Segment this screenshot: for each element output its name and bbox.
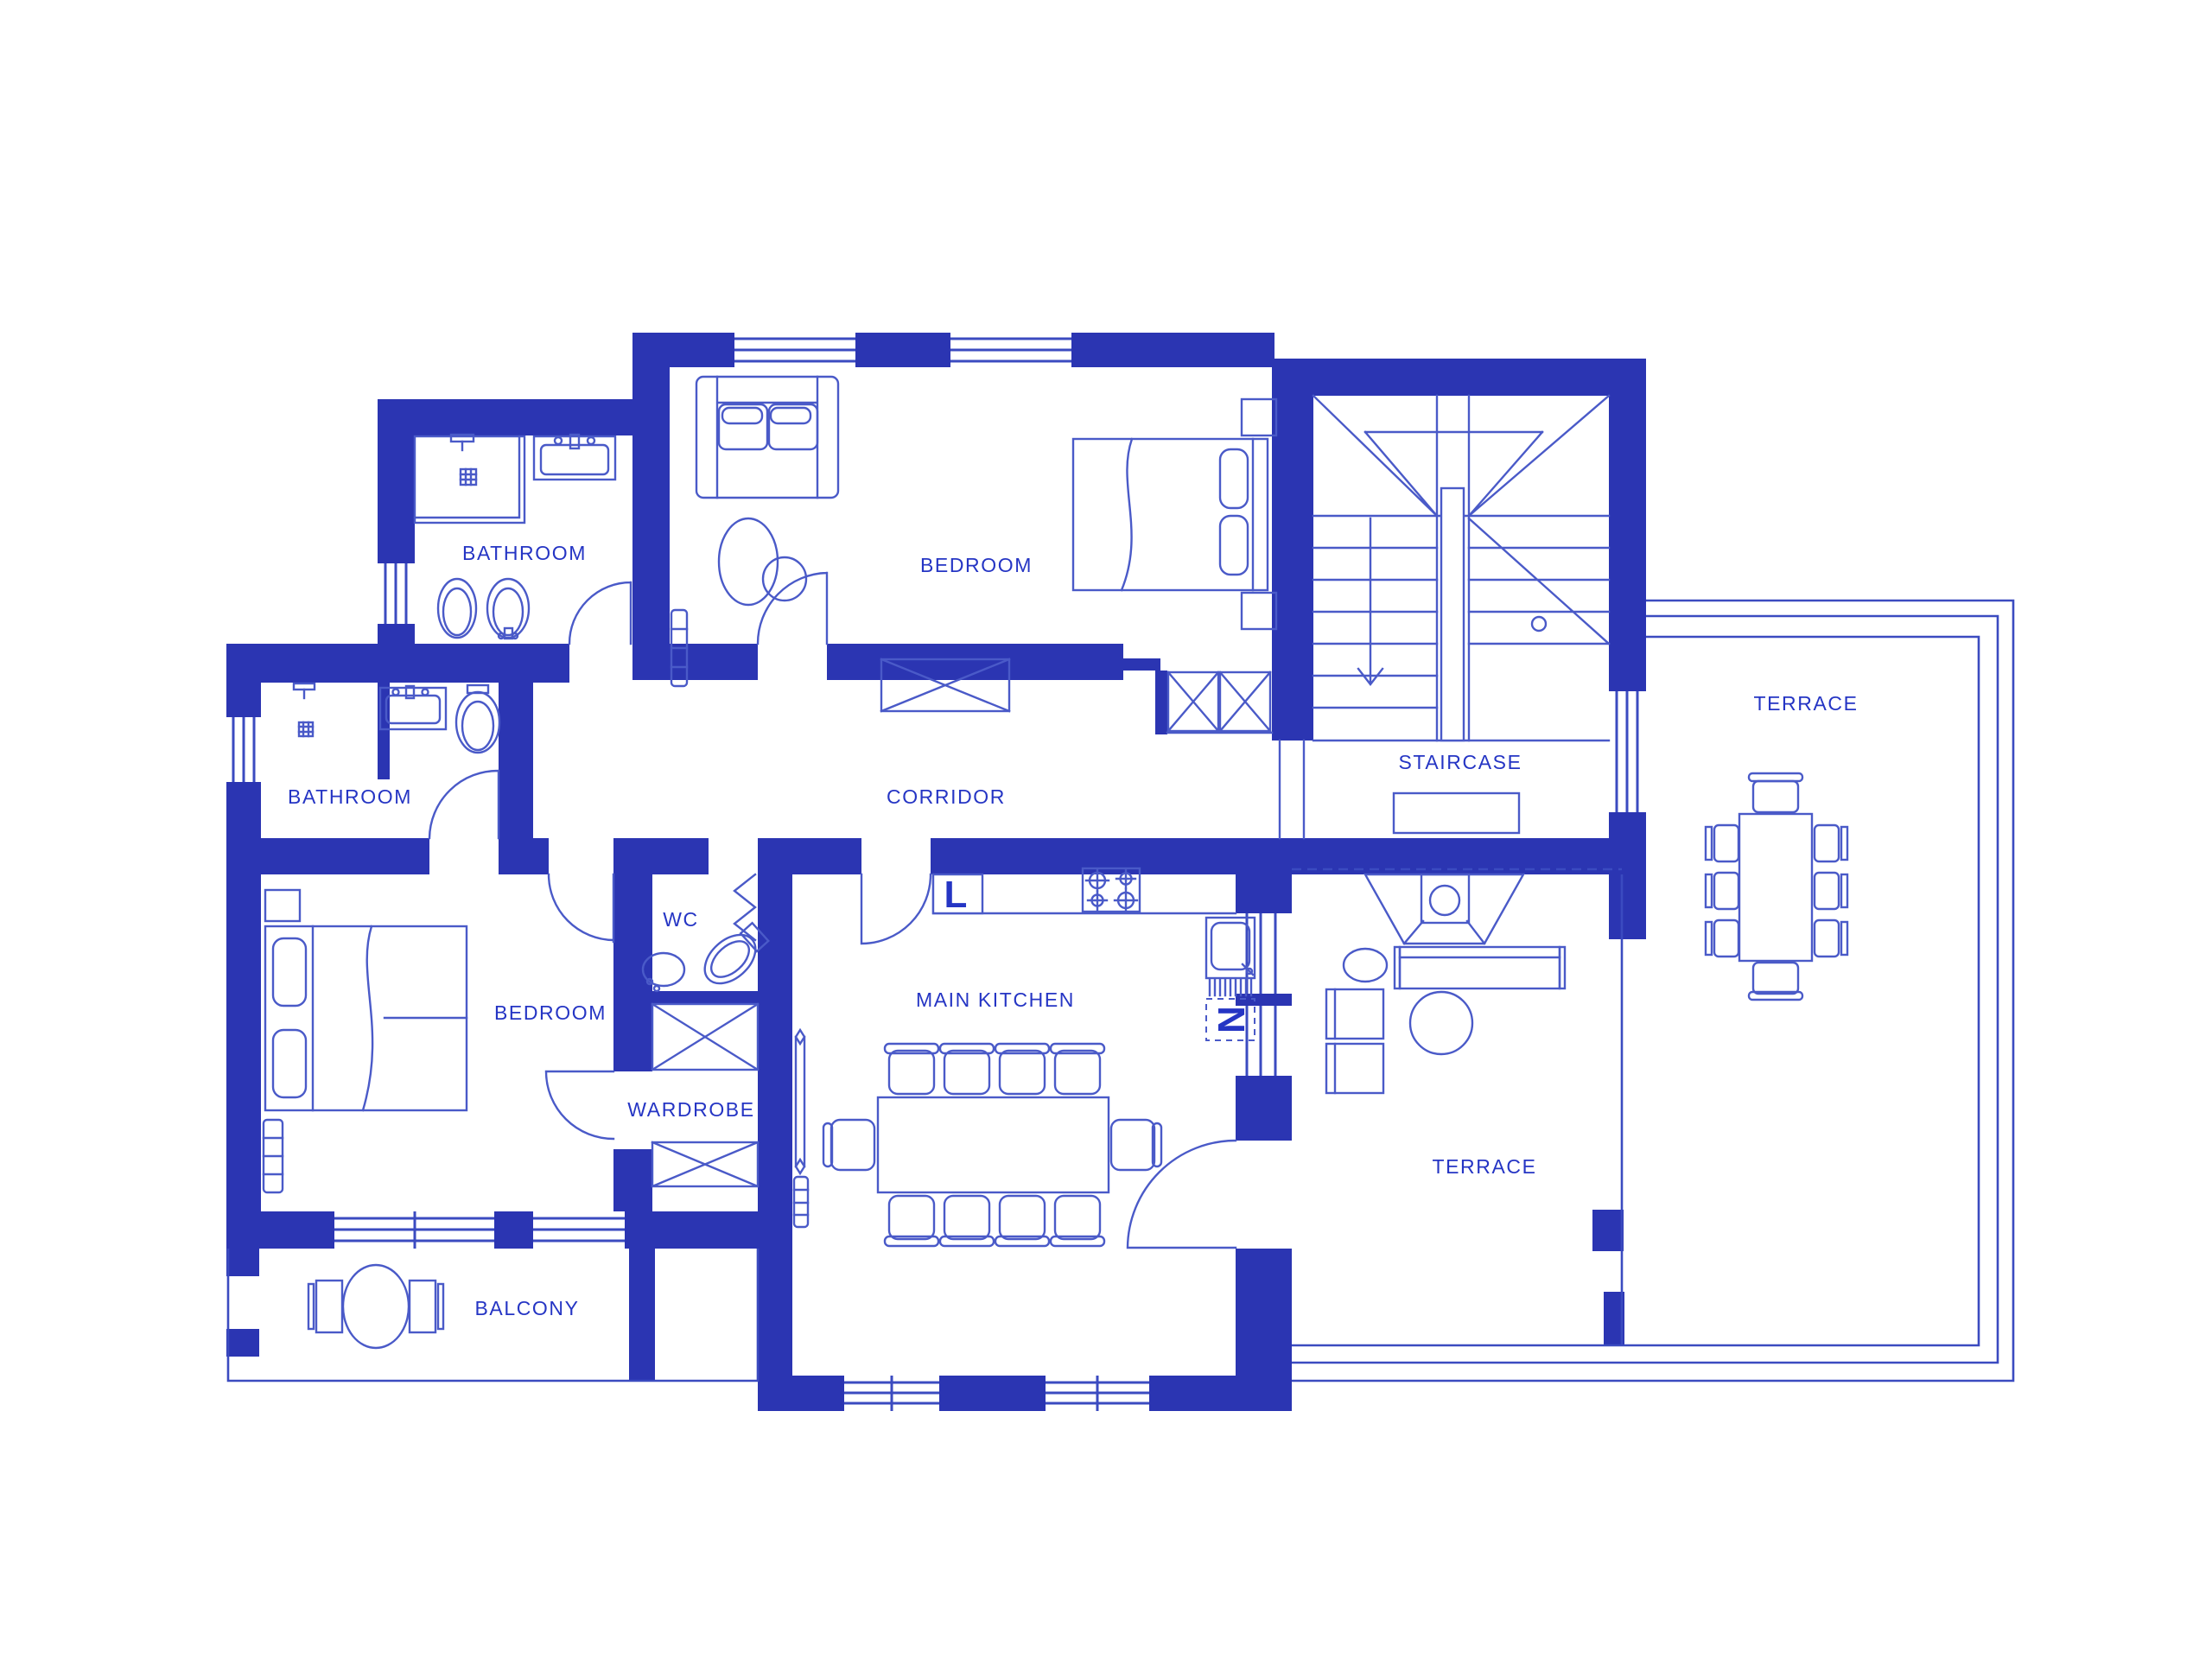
nightstand: [1242, 593, 1276, 629]
label-bedroom-lower: BEDROOM: [494, 1001, 607, 1024]
door-bedroom-lower: [549, 874, 613, 942]
radiator-icon: [794, 1177, 808, 1227]
sink-icon: [380, 686, 446, 729]
kitchen-fixtures: L N: [794, 868, 1255, 1246]
staircase-mat: [1394, 793, 1519, 833]
window-icon: [950, 333, 1071, 367]
door-kitchen: [861, 874, 931, 944]
window-icon: [734, 333, 855, 367]
stove-icon: [1083, 868, 1140, 912]
bench-icon: [1395, 947, 1565, 988]
window-icon: [1046, 1376, 1149, 1411]
shower-icon: [415, 435, 524, 523]
label-wc: WC: [663, 908, 699, 931]
door-bathroom-left: [429, 771, 499, 838]
balcony-chair-icon: [308, 1281, 342, 1332]
terrace-right-furniture: [1706, 773, 1847, 1000]
nightstand: [1242, 399, 1276, 435]
window-icon: [533, 1211, 625, 1249]
side-table: [1344, 949, 1387, 982]
outdoor-chair-icon: [1326, 1044, 1383, 1093]
nightstand: [265, 890, 300, 921]
glazing-corridor-staircase: [1280, 741, 1304, 838]
label-bathroom-top: BATHROOM: [462, 542, 587, 564]
window-icon: [378, 563, 415, 624]
appliance-mark-L: L: [944, 874, 968, 916]
toilet-icon: [456, 685, 499, 753]
closet-icon: [1167, 672, 1272, 733]
window-icon: [226, 717, 261, 782]
bidet-icon: [487, 579, 529, 639]
sink-icon: [534, 435, 615, 480]
window-icon: [1236, 913, 1292, 994]
radiator-icon: [264, 1120, 283, 1192]
appliance-mark-N: N: [1210, 1006, 1252, 1033]
label-bedroom-top: BEDROOM: [920, 554, 1033, 576]
armchair-icon: [719, 518, 806, 605]
closet-icon: [652, 1142, 758, 1186]
bathroom-top-fixtures: [415, 435, 615, 639]
dining-table-icon: [823, 1044, 1161, 1246]
round-table: [343, 1265, 409, 1348]
outdoor-dining-set: [1706, 773, 1847, 1000]
stair-direction-arrow: [1358, 518, 1382, 684]
floor-plan: L N: [0, 0, 2212, 1659]
label-terrace-bottom: TERRACE: [1432, 1155, 1536, 1178]
door-bathroom-top: [569, 582, 631, 644]
outdoor-chair-icon: [1326, 989, 1383, 1039]
bedroom-lower-furniture: [264, 890, 467, 1192]
window-icon: [334, 1211, 494, 1249]
door-wardrobe: [546, 1071, 613, 1139]
round-table: [1410, 992, 1472, 1054]
label-wardrobe: WARDROBE: [627, 1098, 754, 1121]
window-icon: [1609, 691, 1646, 812]
bed-icon: [1073, 439, 1268, 590]
bathroom-left-fixtures: [294, 683, 499, 753]
tall-cabinet-icon: [796, 1030, 804, 1173]
appliance-box: L: [933, 874, 982, 916]
balcony-furniture: [308, 1265, 443, 1348]
label-terrace-right: TERRACE: [1753, 692, 1858, 715]
label-bathroom-left: BATHROOM: [288, 785, 412, 808]
terrace-bottom-furniture: [1326, 874, 1565, 1093]
door-kitchen-terrace: [1128, 1141, 1236, 1248]
label-balcony: BALCONY: [474, 1297, 579, 1319]
door-bedroom-top: [758, 573, 827, 644]
label-main-kitchen: MAIN KITCHEN: [916, 988, 1075, 1011]
terrace-borders: [228, 601, 2013, 1381]
shower-icon: [294, 683, 315, 736]
sofa-icon: [696, 377, 838, 498]
label-staircase: STAIRCASE: [1398, 751, 1522, 773]
window-icon: [844, 1376, 939, 1411]
label-corridor: CORRIDOR: [887, 785, 1006, 808]
wardrobe-closets: [652, 1004, 758, 1186]
fireplace-icon: [1365, 874, 1523, 944]
bed-icon: [265, 926, 467, 1110]
closet-icon: [652, 1004, 758, 1070]
balcony-chair-icon: [410, 1281, 443, 1332]
toilet-icon: [438, 579, 476, 638]
walls: [226, 333, 1646, 1411]
